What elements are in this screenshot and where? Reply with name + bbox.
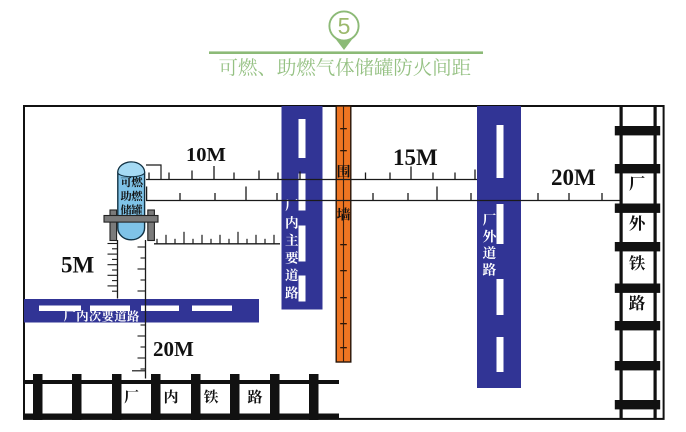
svg-text:15M: 15M	[393, 145, 438, 170]
svg-text:5M: 5M	[61, 253, 95, 278]
svg-text:20M: 20M	[551, 165, 596, 190]
svg-text:5: 5	[338, 13, 351, 39]
svg-text:20M: 20M	[153, 337, 194, 361]
svg-text:10M: 10M	[186, 144, 226, 166]
